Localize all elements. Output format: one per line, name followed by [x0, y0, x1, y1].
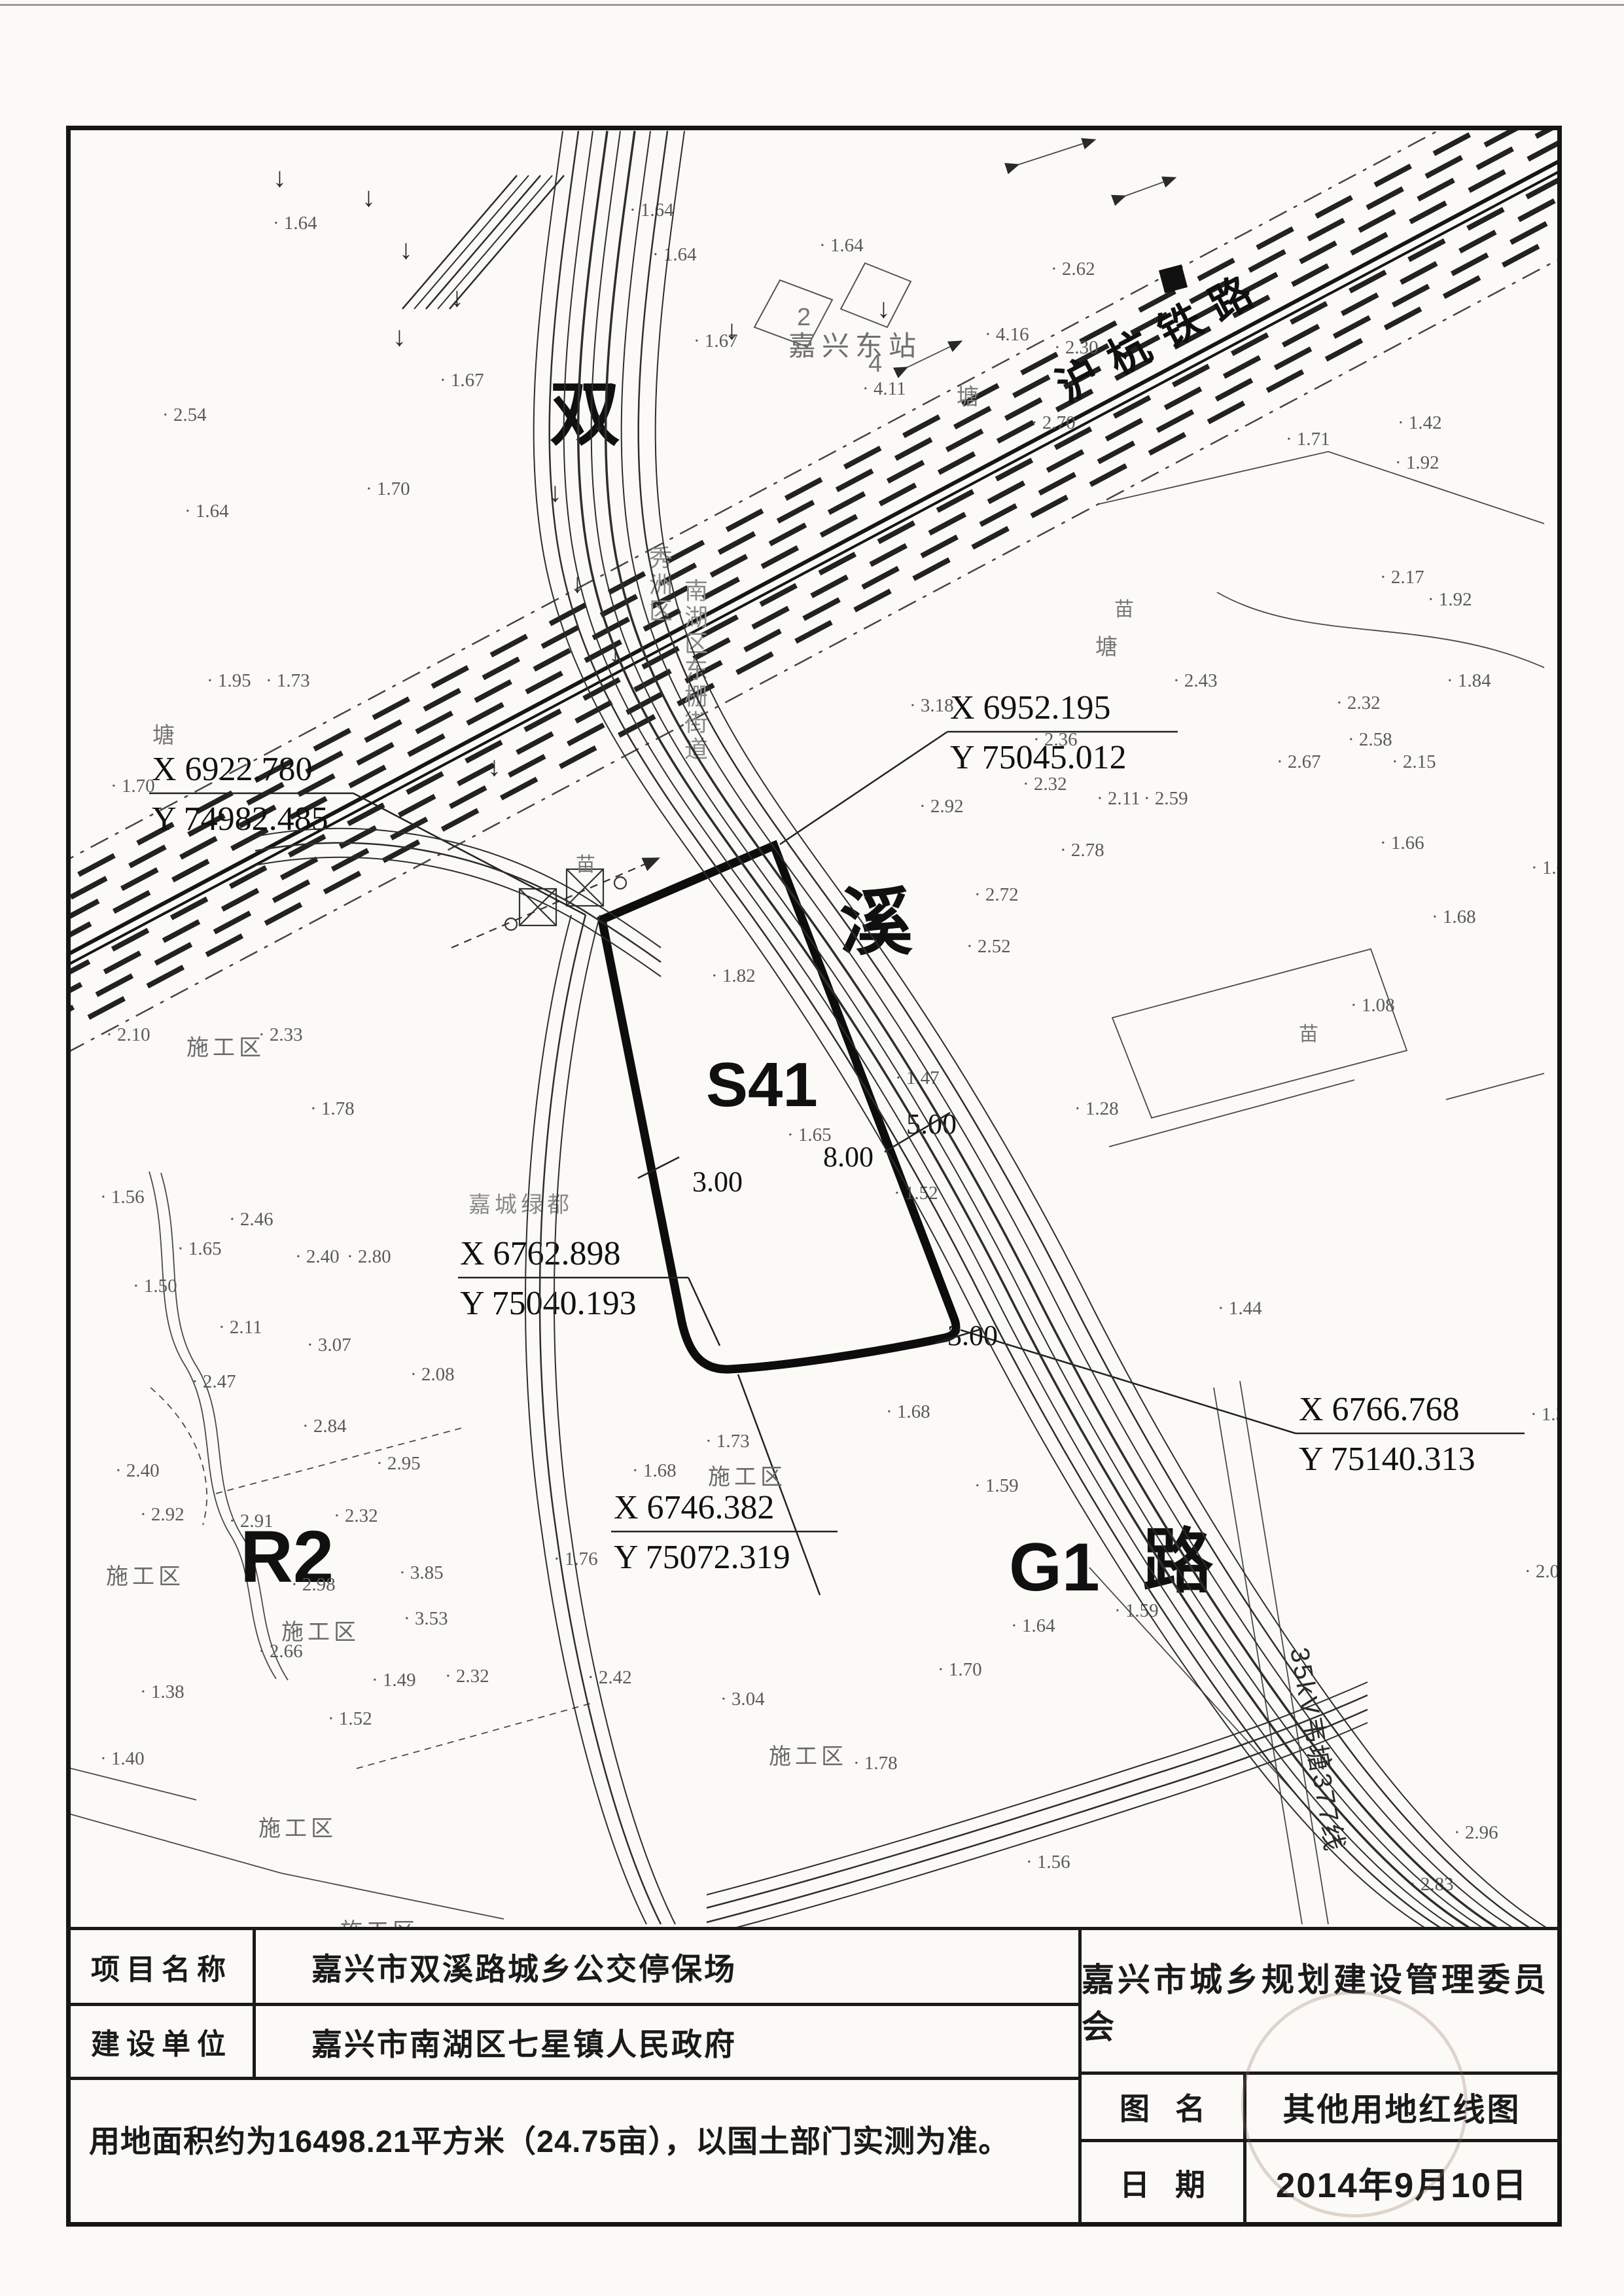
- canal-lines-line: [450, 175, 564, 309]
- dim-west: 3.00: [692, 1166, 743, 1198]
- spot-elevation: · 1.56: [100, 1187, 145, 1208]
- railway-hatch: [7, 164, 1624, 1024]
- spot-elevation: · 1.64: [819, 235, 864, 256]
- survey-markers: [451, 859, 658, 948]
- small-feature-label: 塘: [152, 723, 175, 748]
- spot-elevation: · 2.17: [1380, 567, 1424, 588]
- boundary-line: [66, 1767, 196, 1800]
- field-parcel: [1112, 949, 1407, 1118]
- figure-label-char-1: 图: [1120, 2085, 1150, 2128]
- spot-elevation: · 2.96: [1454, 1822, 1498, 1843]
- spot-elevation: · 1.08: [1350, 995, 1395, 1016]
- spot-elevation: · 1.50: [133, 1276, 177, 1297]
- field-line: [1099, 452, 1544, 524]
- figure-name-label: 图 名: [1082, 2075, 1243, 2139]
- district-label-nanhu-dongzha: 南湖区东栅街道: [684, 577, 708, 762]
- coord-leader: [780, 732, 947, 844]
- spot-elevation: · 1.82: [711, 965, 756, 986]
- measure-arrow: [1124, 178, 1174, 196]
- spot-elevation: · 1.49: [372, 1670, 416, 1691]
- spot-elevation: · 1.78: [310, 1098, 355, 1119]
- spot-elevation: · 1.73: [266, 670, 310, 691]
- spot-elevation: · 2.58: [1348, 729, 1392, 750]
- spot-elevation: · 1.64: [185, 501, 229, 522]
- spot-elevation: · 1.64: [1011, 1615, 1055, 1636]
- spot-elevation: · 1.38: [140, 1681, 185, 1702]
- small-feature-label: 2: [797, 304, 811, 331]
- canal-lines-line: [426, 175, 540, 309]
- small-feature-label: 塘: [1095, 635, 1118, 660]
- spot-elevation: · 3.07: [307, 1335, 351, 1355]
- map-area: 沪杭铁路: [0, 61, 1624, 1944]
- district-label-xiuzhou: 秀洲区: [649, 545, 673, 624]
- coordinate-callout-2: X 6952.195 Y 75045.012: [780, 689, 1178, 844]
- project-name-label: 项目名称: [71, 1930, 253, 2003]
- dashed-boundary: [357, 1703, 592, 1768]
- construction-area-label: 施工区: [186, 1035, 265, 1060]
- spot-elevation: · 3.04: [720, 1689, 765, 1710]
- spot-elevation: · 4.16: [985, 324, 1029, 345]
- spot-elevation: · 2.98: [291, 1574, 336, 1595]
- spot-elevation: · 2.80: [347, 1246, 391, 1267]
- spot-elevation: · 2.36: [1033, 729, 1078, 750]
- spot-elevation: · 1.68: [1432, 906, 1476, 927]
- zone-label-g1: G1: [1009, 1530, 1100, 1605]
- spot-elevation: · 2.66: [258, 1641, 303, 1662]
- spot-elevation: · 1.28: [1074, 1098, 1119, 1119]
- spot-elevation: · 1.70: [366, 478, 410, 499]
- survey-point: [614, 877, 626, 889]
- spot-elevation: · 2.32: [1023, 774, 1067, 795]
- small-feature-labels: 塘塘塘苗苗苗24: [152, 304, 1318, 1045]
- spot-elevation: · 2.70: [1031, 412, 1076, 433]
- zone-label-s41: S41: [706, 1050, 818, 1120]
- spot-elevation: · 1.73: [705, 1431, 750, 1452]
- dim-south: 3.00: [947, 1319, 998, 1352]
- spot-elevation: · 2.10: [106, 1024, 150, 1045]
- roadname-char-xi: 溪: [839, 882, 913, 963]
- spot-elevation: · 4.11: [862, 378, 906, 399]
- construction-area-label: 施工区: [258, 1816, 337, 1841]
- spot-elevation: · 1.42: [1398, 412, 1442, 433]
- canal-lines-line: [414, 175, 529, 309]
- survey-sight-line: [451, 859, 658, 948]
- station-building: [841, 263, 911, 327]
- date-label-char-2: 期: [1175, 2161, 1205, 2204]
- main-road-line: [656, 131, 1551, 1931]
- flow-arrow-icon: ↓: [362, 181, 376, 212]
- land-area-note: 用地面积约为16498.21平方米（24.75亩），以国土部门实测为准。: [71, 2080, 1076, 2222]
- spot-elevation: · 1.92: [1428, 589, 1472, 610]
- field-line: [1217, 592, 1544, 668]
- spot-elevation: · 2.62: [1051, 259, 1095, 279]
- solid-building-marker: [1159, 264, 1188, 293]
- field-line: [1109, 1080, 1354, 1147]
- coord-y-value: Y 75040.193: [460, 1285, 637, 1322]
- spot-elevation: · 2.08: [410, 1364, 455, 1385]
- coord-leader: [353, 793, 586, 915]
- spot-elevation: · 1.64: [273, 213, 317, 234]
- construction-area-label: 施工区: [769, 1744, 847, 1769]
- spot-elevation: · 2.59: [1144, 788, 1188, 809]
- spot-elevation: · 1.65: [787, 1124, 832, 1145]
- spot-elevation: · 1.84: [1447, 670, 1491, 691]
- spot-elevation: · 2.15: [1392, 751, 1436, 772]
- spot-elevation: · 2.92: [140, 1504, 185, 1525]
- spot-elevation: · 2.46: [229, 1209, 274, 1230]
- flow-arrow-icon: ↓: [592, 406, 606, 437]
- coord-y-value: Y 74982.485: [152, 800, 328, 838]
- spot-elevation: · 1.52: [894, 1183, 938, 1204]
- coord-x-value: X 6746.382: [614, 1489, 775, 1526]
- spot-elevation: · 2.07: [1525, 1561, 1569, 1582]
- spot-elevation: · 1.52: [328, 1708, 372, 1729]
- construction-area-label: 施工区: [106, 1564, 185, 1589]
- spot-elevation: · 1.40: [100, 1748, 145, 1769]
- builder-value: 嘉兴市南湖区七星镇人民政府: [256, 2006, 1076, 2077]
- builder-label: 建设单位: [71, 2006, 253, 2077]
- spot-elevation: · 1.71: [1286, 429, 1330, 450]
- figure-label-char-2: 名: [1175, 2085, 1205, 2128]
- coordinate-callout-5: X 6766.768 Y 75140.313: [961, 1330, 1525, 1478]
- spot-elevation: · 2.43: [1173, 670, 1218, 691]
- spot-elevation: · 1.66: [1380, 833, 1424, 853]
- spot-elevation: · 2.54: [162, 404, 207, 425]
- main-road-line: [578, 131, 1474, 1931]
- bottom-road-line: [707, 1695, 1368, 1908]
- spot-elevation: · 1.64: [652, 244, 697, 265]
- railway-hatch: [0, 120, 1601, 981]
- spot-elevation: · 2.67: [1277, 751, 1321, 772]
- flow-arrow-icon: ↓: [487, 751, 501, 781]
- spot-elevation: · 2.92: [919, 796, 964, 817]
- spot-elevation: · 2.40: [115, 1460, 160, 1481]
- date-label: 日 期: [1082, 2142, 1243, 2223]
- spot-elevation: · 1.78: [853, 1753, 898, 1774]
- small-feature-label: 4: [868, 350, 882, 378]
- scanned-redline-map-page: 沪杭铁路: [0, 0, 1624, 2296]
- spot-elevation: · 2.52: [966, 936, 1011, 957]
- date-label-char-1: 日: [1120, 2161, 1150, 2204]
- small-feature-label: 苗: [1114, 599, 1134, 620]
- flow-arrow-icon: ↓: [393, 321, 406, 351]
- spot-elevation: · 1.70: [111, 776, 155, 797]
- small-feature-label: 苗: [1299, 1024, 1318, 1045]
- spot-elevation: · 1.92: [1395, 452, 1439, 473]
- spot-elevation: · 3.18: [909, 695, 954, 716]
- flow-arrow-icon: ↓: [399, 234, 413, 264]
- flow-arrow-icon: ↓: [877, 293, 891, 323]
- spot-elevation: · 3.53: [404, 1608, 448, 1629]
- spot-elevation: · 1.08: [1531, 857, 1576, 878]
- spot-elevation: · 3.85: [399, 1562, 444, 1583]
- spot-elevation: · 1.70: [938, 1659, 982, 1680]
- spot-elevation: · 2.32: [334, 1505, 378, 1526]
- dim-middle: 8.00: [823, 1141, 874, 1173]
- spot-elevation: · 2.78: [1060, 840, 1104, 861]
- measure-arrow: [1017, 140, 1094, 165]
- main-road-line: [606, 131, 1502, 1931]
- spot-elevation: · 1.59: [974, 1475, 1019, 1496]
- spot-elevation: · 2.11: [219, 1317, 262, 1338]
- spot-elevation: · 2.72: [974, 884, 1019, 905]
- project-name-value: 嘉兴市双溪路城乡公交停保场: [256, 1930, 1076, 2003]
- spot-elevation: · 1.67: [440, 370, 484, 391]
- spot-elevation: · 2.11: [1097, 788, 1140, 809]
- coord-x-value: X 6952.195: [950, 689, 1111, 726]
- roadname-char-shuang: 双: [550, 374, 620, 454]
- spot-elevation: · 1.68: [886, 1401, 930, 1422]
- spot-elevation: · 1.44: [1218, 1298, 1262, 1319]
- coord-x-value: X 6922.780: [152, 751, 313, 788]
- small-feature-label: 苗: [576, 854, 595, 876]
- railway-hatch: [0, 149, 1617, 1010]
- coord-leader: [961, 1330, 1296, 1433]
- station-name-label: 嘉兴东站: [788, 331, 922, 361]
- field-line: [1446, 1073, 1544, 1100]
- coord-y-value: Y 75140.313: [1299, 1441, 1475, 1478]
- railway-boundary: [0, 61, 1570, 922]
- coord-leader: [688, 1278, 720, 1346]
- spot-elevation: · 1.56: [1026, 1852, 1070, 1873]
- flow-arrow-icon: ↓: [725, 314, 739, 345]
- spot-elevation: · 1.32: [1530, 1404, 1575, 1425]
- spot-elevation: · 2.33: [258, 1024, 303, 1045]
- spot-elevation: · 2.32: [1336, 692, 1381, 713]
- canal-lines-line: [438, 175, 552, 309]
- dim-tick: [638, 1157, 679, 1178]
- small-feature-label: 塘: [957, 385, 979, 410]
- south-road-line: [554, 915, 675, 1924]
- spot-elevation: · 2.95: [376, 1453, 421, 1474]
- spot-elevation: · 2.47: [192, 1371, 236, 1392]
- spot-elevation: · 2.32: [445, 1666, 489, 1687]
- spot-elevation: · 1.65: [177, 1238, 222, 1259]
- dashed-boundary: [216, 1428, 461, 1494]
- coord-y-value: Y 75072.319: [614, 1539, 790, 1576]
- railway-band: [0, 61, 1624, 1071]
- flow-arrow-icon: ↓: [273, 162, 287, 192]
- spot-elevation: · 2.84: [302, 1416, 347, 1437]
- construction-area-label: 施工区: [708, 1465, 786, 1490]
- spot-elevation: · 1.95: [207, 670, 251, 691]
- official-seal-stamp: [1241, 1991, 1468, 2217]
- railway-rail: [0, 143, 1614, 1003]
- railway-hatch: [22, 192, 1624, 1053]
- spot-elevation: · 2.40: [295, 1246, 340, 1267]
- spot-elevation: · 1.68: [632, 1460, 677, 1481]
- spot-elevation: · 2.30: [1054, 337, 1099, 358]
- spot-elevation: · 1.64: [629, 200, 674, 221]
- coord-x-value: X 6766.768: [1299, 1391, 1460, 1428]
- spot-elevation: · 2.91: [229, 1511, 274, 1532]
- main-road-line: [564, 131, 1460, 1931]
